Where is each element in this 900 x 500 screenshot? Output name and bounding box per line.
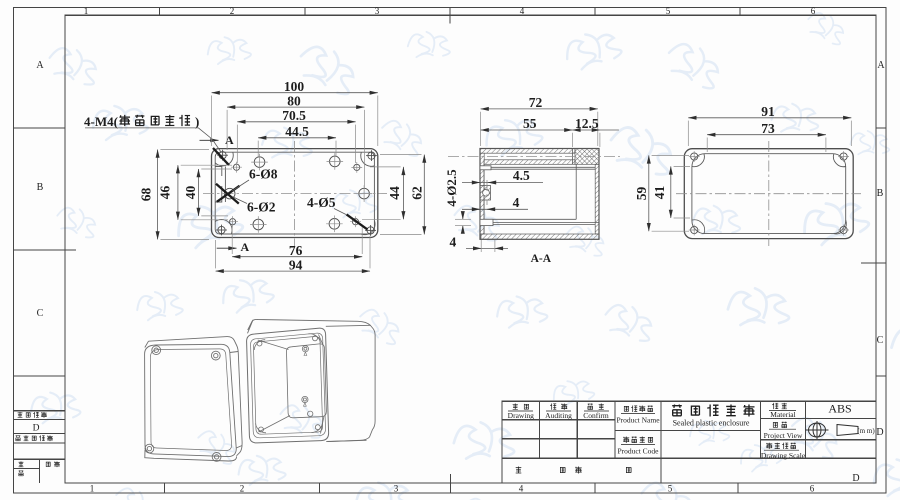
svg-text:40: 40 bbox=[183, 186, 198, 200]
svg-text:D: D bbox=[876, 427, 883, 438]
svg-text:72: 72 bbox=[529, 95, 543, 110]
svg-text:91: 91 bbox=[761, 104, 775, 119]
svg-text:1: 1 bbox=[84, 6, 89, 16]
svg-text:D: D bbox=[33, 423, 40, 433]
svg-text:44.5: 44.5 bbox=[285, 124, 309, 139]
svg-text:Drawing Scale: Drawing Scale bbox=[761, 451, 806, 460]
svg-text:2: 2 bbox=[240, 484, 245, 494]
svg-text:B: B bbox=[37, 182, 44, 193]
svg-text:Material: Material bbox=[770, 410, 795, 419]
svg-text:A: A bbox=[241, 240, 250, 254]
svg-text:B: B bbox=[877, 188, 884, 199]
svg-text:2: 2 bbox=[230, 6, 235, 16]
svg-text:12.5: 12.5 bbox=[575, 116, 599, 131]
svg-text:3: 3 bbox=[394, 484, 399, 494]
svg-text:4: 4 bbox=[520, 6, 525, 16]
svg-text:C: C bbox=[37, 308, 44, 319]
svg-text:Auditing: Auditing bbox=[545, 411, 572, 420]
svg-text:Product Name: Product Name bbox=[616, 416, 660, 425]
svg-text:4-Ø2.5: 4-Ø2.5 bbox=[444, 169, 459, 207]
svg-text:C: C bbox=[877, 335, 884, 346]
svg-text:4.5: 4.5 bbox=[513, 168, 530, 183]
svg-text:ABS: ABS bbox=[828, 402, 851, 416]
svg-text:76: 76 bbox=[289, 243, 303, 258]
svg-text:6-Ø2: 6-Ø2 bbox=[247, 200, 276, 215]
svg-text:4: 4 bbox=[450, 235, 457, 250]
svg-text:6: 6 bbox=[811, 6, 816, 16]
svg-text:Product Code: Product Code bbox=[617, 447, 659, 456]
svg-text:94: 94 bbox=[289, 257, 303, 272]
svg-text:A: A bbox=[877, 60, 885, 71]
svg-text:46: 46 bbox=[158, 186, 173, 200]
svg-text:5: 5 bbox=[666, 6, 671, 16]
svg-text:A: A bbox=[225, 133, 234, 147]
svg-text:100: 100 bbox=[284, 79, 305, 94]
svg-text:A-A: A-A bbox=[531, 253, 552, 265]
svg-text:55: 55 bbox=[523, 116, 537, 131]
svg-text:4-M4(: 4-M4( bbox=[84, 114, 118, 129]
svg-text:D: D bbox=[852, 473, 859, 484]
svg-text:Project View: Project View bbox=[764, 431, 803, 440]
svg-text:80: 80 bbox=[287, 93, 301, 108]
svg-text:A: A bbox=[36, 60, 44, 71]
svg-text:70.5: 70.5 bbox=[282, 108, 306, 123]
svg-text:6-Ø8: 6-Ø8 bbox=[249, 167, 278, 182]
svg-text:Drawing: Drawing bbox=[508, 411, 534, 420]
svg-text:3: 3 bbox=[375, 6, 380, 16]
svg-text:41: 41 bbox=[652, 186, 667, 200]
svg-text:Sealed plastic enclosure: Sealed plastic enclosure bbox=[673, 419, 750, 428]
svg-text:4: 4 bbox=[519, 484, 524, 494]
svg-text:): ) bbox=[195, 114, 199, 129]
svg-text:68: 68 bbox=[139, 188, 154, 202]
svg-text:62: 62 bbox=[410, 186, 425, 200]
svg-text:73: 73 bbox=[761, 121, 775, 136]
svg-text:44: 44 bbox=[387, 186, 402, 200]
svg-text:4: 4 bbox=[513, 195, 520, 210]
svg-text:(m m): (m m) bbox=[857, 427, 875, 435]
svg-text:4-Ø5: 4-Ø5 bbox=[307, 195, 336, 210]
svg-text:Confirm: Confirm bbox=[583, 411, 609, 420]
svg-text:5: 5 bbox=[668, 484, 673, 494]
svg-text:1: 1 bbox=[90, 484, 95, 494]
svg-text:59: 59 bbox=[634, 187, 649, 201]
svg-text:6: 6 bbox=[810, 484, 815, 494]
